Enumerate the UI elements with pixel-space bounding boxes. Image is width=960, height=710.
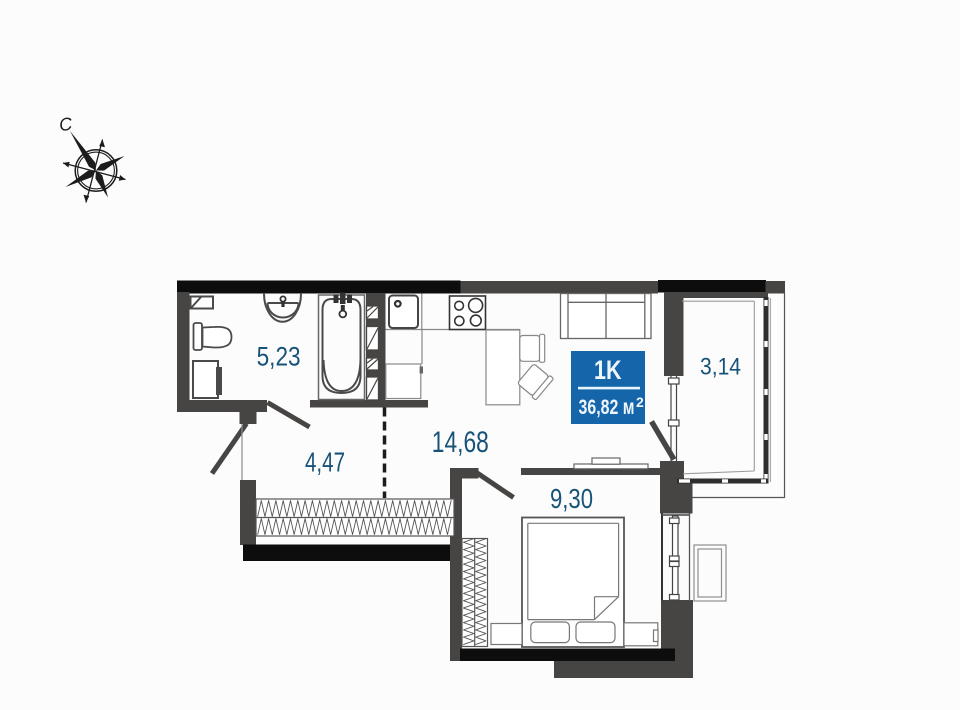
svg-text:36,82 м: 36,82 м	[579, 396, 635, 419]
svg-text:2: 2	[636, 394, 644, 410]
svg-text:1K: 1K	[594, 355, 622, 385]
svg-text:4,47: 4,47	[305, 447, 345, 478]
svg-text:9,30: 9,30	[550, 483, 593, 514]
svg-text:5,23: 5,23	[257, 342, 301, 372]
svg-text:14,68: 14,68	[432, 426, 489, 459]
svg-text:3,14: 3,14	[700, 354, 741, 381]
